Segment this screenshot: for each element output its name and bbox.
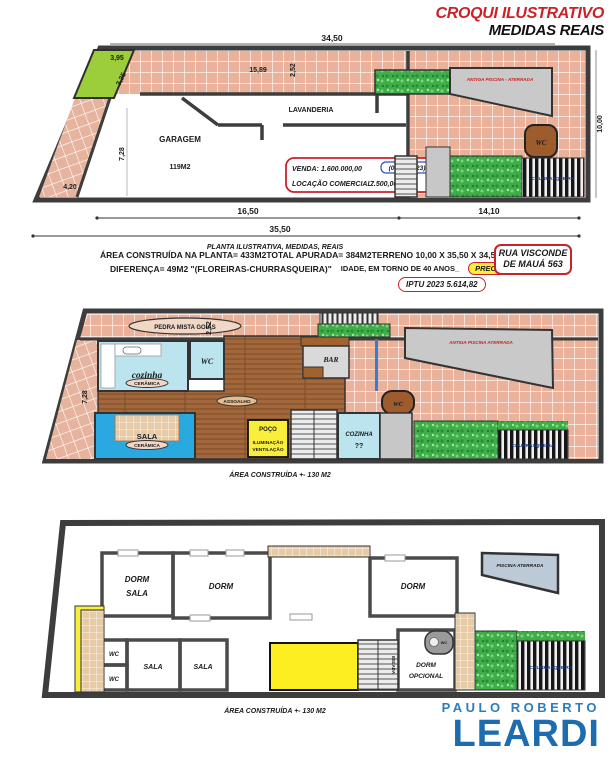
plan3-caption: ÁREA CONSTRUÍDA +- 130 M2 <box>223 706 326 715</box>
flyer-page: CROQUI ILUSTRATIVO MEDIDAS REAIS <box>0 0 614 768</box>
escada-label: ESCADA <box>391 656 396 674</box>
area-construida-text: ÁREA CONSTRUÍDA NA PLANTA= 433M2 <box>100 250 266 260</box>
wc-label: WC <box>536 139 547 147</box>
sala-label: SALA <box>137 432 158 441</box>
wc-corner-label: WC <box>441 640 448 645</box>
plan1-ground-floor: 34,50 3,95 3,35 15,89 2,52 GARAGEM 119M2… <box>30 28 610 252</box>
highlighted-room <box>270 643 358 690</box>
bar-counter <box>301 337 349 346</box>
bar-counter <box>303 367 323 378</box>
dorm-opcional-label2: OPCIONAL <box>409 673 443 680</box>
grass-area <box>450 156 522 197</box>
grass-strip2 <box>498 421 568 430</box>
churrasqueira-label: CHURRASQUEIRA <box>532 176 575 182</box>
dorm-sala-label2: SALA <box>126 589 148 598</box>
agency-logo: PAULO ROBERTO LEARDI <box>442 701 600 753</box>
dim-tick <box>577 234 580 237</box>
garagem-label: GARAGEM <box>159 135 201 144</box>
dim-35-50: 35,50 <box>269 224 291 234</box>
old-pool-label: ANTIGA PISCINA - ATERRADA <box>466 77 534 82</box>
venda-value: 1.600.000,00 <box>321 166 362 173</box>
wc-booth2-label: WC <box>393 401 404 408</box>
page-title: CROQUI ILUSTRATIVO <box>435 6 604 23</box>
counter <box>101 344 115 388</box>
side-stair <box>81 610 104 692</box>
dim-tick <box>95 216 98 219</box>
address-line2: DE MAUÁ 563 <box>498 259 568 270</box>
wc1-label: WC <box>109 652 120 658</box>
grass-area2 <box>414 421 498 459</box>
dim-10-00: 10,00 <box>597 115 604 133</box>
address-line1: RUA VISCONDE <box>498 248 568 259</box>
dim-3-95: 3,95 <box>110 55 124 62</box>
poco-label2: ILUMINAÇÃO <box>253 439 284 446</box>
plan2-caption: ÁREA CONSTRUÍDA +- 130 M2 <box>228 470 331 479</box>
dim-15-89: 15,89 <box>249 67 267 74</box>
plan2-middle-floor: PEDRA MISTA GOIÁS 2,52 7,28 cozinha CERÂ… <box>35 303 610 483</box>
ceramica2-label: CERÂMICA <box>134 442 160 449</box>
wc-fixture <box>430 638 439 647</box>
stairs <box>395 156 417 197</box>
diferenca-text: DIFERENÇA= 49M2 "(FLOREIRAS-CHURRASQUEIR… <box>110 264 332 274</box>
venda-label: VENDA: <box>292 166 319 173</box>
dim-tick <box>577 216 580 219</box>
grass-area3 <box>475 631 517 690</box>
wc2-label: WC <box>201 357 214 366</box>
logo-line2: LEARDI <box>442 715 600 753</box>
info-line1: ÁREA CONSTRUÍDA NA PLANTA= 433M2 TOTAL A… <box>100 250 500 260</box>
lavanderia-label: LAVANDERIA <box>289 107 334 114</box>
total-apurada-text: TOTAL APURADA= 384M2 <box>266 250 371 260</box>
locacao-label: LOCAÇÃO COMERCIAL: <box>292 179 374 188</box>
corridor <box>380 413 412 459</box>
dorm-sala-label1: DORM <box>125 575 150 584</box>
pipe <box>375 339 378 391</box>
sink <box>123 347 141 354</box>
tiled-band <box>268 546 370 557</box>
tiled-strip3 <box>455 613 475 690</box>
dim2-2-52: 2,52 <box>206 321 213 335</box>
grass-strip3 <box>517 631 585 641</box>
dim-tick <box>31 234 34 237</box>
locacao-value: 7.500,00 <box>370 181 397 188</box>
planter-strip <box>318 324 390 337</box>
grill-strip <box>320 313 378 324</box>
dim-34-50: 34,50 <box>321 33 343 43</box>
dim-7-28: 7,28 <box>119 147 126 161</box>
cozinha2-label2: ?? <box>355 443 364 450</box>
structure-block <box>426 147 450 197</box>
dim-16-50: 16,50 <box>237 206 259 216</box>
plan3-upper-floor: PISCINA ATERRADA ESCADA WC DORM SALA DOR… <box>40 513 610 718</box>
address-box: RUA VISCONDE DE MAUÁ 563 <box>494 244 572 275</box>
ceramica-label: CERÂMICA <box>134 380 160 387</box>
dim-14-10: 14,10 <box>478 206 500 216</box>
dorm-opcional-label1: DORM <box>416 662 436 669</box>
bar-label: BAR <box>322 355 338 364</box>
sala2-label: SALA <box>193 664 212 671</box>
poco-label1: POÇO <box>259 427 277 433</box>
poco-label3: VENTILAÇÃO <box>252 446 283 453</box>
assoalho-label: ASSOALHO <box>223 399 250 405</box>
iptu-badge: IPTU 2023 5.614,82 <box>398 277 486 292</box>
churrasqueira3-label: CHURRASQUEIRA <box>530 665 573 671</box>
churrasqueira2-label: CHURRASQUEIRA <box>512 443 555 449</box>
dim-tick <box>397 216 400 219</box>
dorm2-label: DORM <box>209 582 234 591</box>
filled-pool-label: PISCINA ATERRADA <box>497 563 545 569</box>
dim2-7-28: 7,28 <box>82 390 89 404</box>
dim-2-52: 2,52 <box>290 63 297 77</box>
wc2-label: WC <box>109 677 120 683</box>
garagem-area-label: 119M2 <box>169 164 190 171</box>
idade-text: IDADE, EM TORNO DE 40 ANOS_ <box>341 264 459 273</box>
old-pool-label2: ANTIGA PISCINA ATERRADA <box>448 340 513 345</box>
dorm3-label: DORM <box>401 582 426 591</box>
sala1-label: SALA <box>143 664 162 671</box>
cozinha2-label1: COZINHA <box>345 432 372 438</box>
dim-4-20: 4,20 <box>63 184 77 191</box>
